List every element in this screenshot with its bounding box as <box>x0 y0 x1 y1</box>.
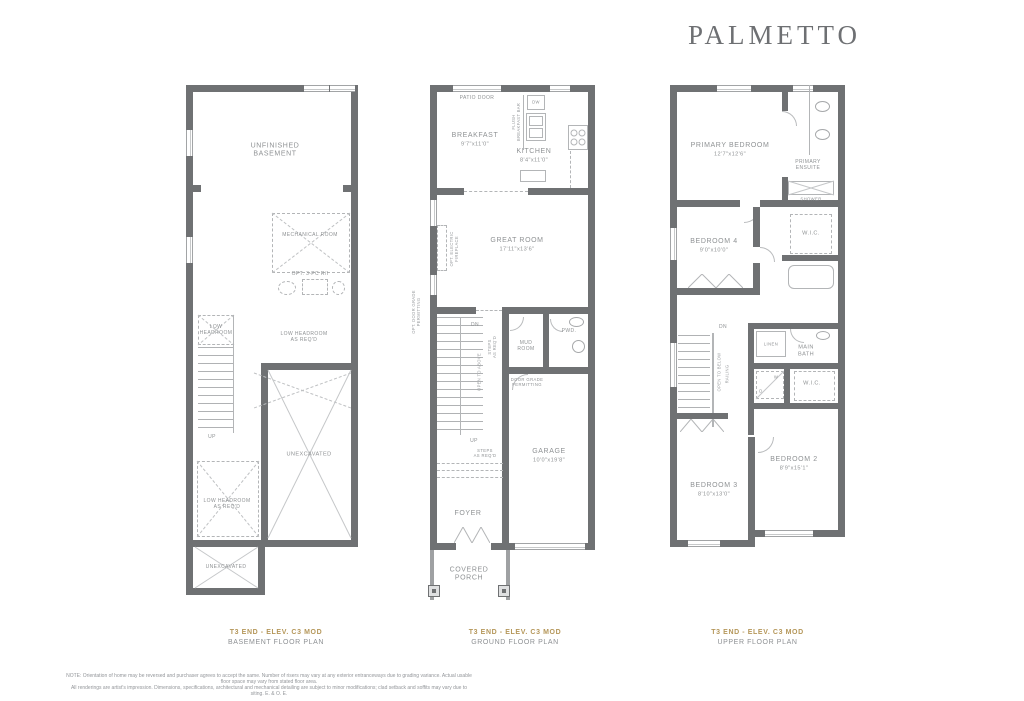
wall <box>261 363 358 370</box>
door-arc <box>790 329 804 343</box>
room-label-primary-bedroom: PRIMARY BEDROOM <box>691 142 770 150</box>
wall <box>186 540 358 547</box>
wall <box>748 323 754 435</box>
window <box>550 85 570 92</box>
wall <box>502 307 595 314</box>
kitchen-island <box>520 170 546 182</box>
room-dims-bedroom2: 8'9"x15'1" <box>780 466 808 473</box>
room-label-covered-porch: COVERED PORCH <box>450 567 489 584</box>
label-door-grade: DOOR GRADE PERMITTING <box>511 377 544 387</box>
wall <box>186 85 193 595</box>
wall <box>838 85 845 537</box>
label-flush-breakfast-bar: FLUSH BREAKFAST BAR <box>511 103 522 141</box>
basement-caption: T3 END - ELEV. C3 MOD BASEMENT FLOOR PLA… <box>186 629 366 646</box>
door-arc <box>782 111 797 126</box>
ground-caption: T3 END - ELEV. C3 MOD GROUND FLOOR PLAN <box>430 629 600 646</box>
room-label-foyer: FOYER <box>454 510 481 518</box>
window <box>688 540 720 547</box>
label-railing: RAILING <box>724 365 729 384</box>
window <box>793 85 813 92</box>
opt-bath-toilet <box>332 281 345 295</box>
room-label-bedroom2: BEDROOM 2 <box>770 456 817 464</box>
door-arc <box>510 317 524 331</box>
label-low-headroom-right: LOW HEADROOM AS REQ'D <box>280 331 327 343</box>
label-dishwasher: DW <box>532 99 540 104</box>
label-up: UP <box>470 438 478 444</box>
room-label-great-room: GREAT ROOM <box>490 237 543 245</box>
label-open-to-below: OPEN TO BELOW <box>716 353 721 392</box>
room-label-breakfast: BREAKFAST <box>452 132 499 140</box>
wall <box>430 85 437 550</box>
upper-caption-plan: UPPER FLOOR PLAN <box>670 639 845 646</box>
porch-pillar <box>428 585 440 597</box>
room-label-bedroom4: BEDROOM 4 <box>690 238 737 246</box>
room-dims-bedroom3: 8'10"x13'0" <box>698 492 730 499</box>
closet-doors <box>680 419 724 432</box>
label-opt-door-grade: OPT. DOOR GRADE PERMITTING <box>411 290 422 334</box>
wall <box>430 307 476 314</box>
room-label-mud-room: MUD ROOM <box>517 340 534 352</box>
room-label-wic-lower: W.I.C. <box>803 381 821 388</box>
label-steps-as-reqd-v: STEPS AS REQ'D <box>487 336 498 358</box>
sink <box>815 101 830 112</box>
cooktop-burners <box>568 125 588 150</box>
wall <box>754 363 845 369</box>
wall <box>543 314 549 374</box>
room-dims-garage: 10'0"x19'8" <box>533 458 565 465</box>
ground-floor-plan: PATIO DOOR BREAKFAST 9'7"x11'0" KITCHEN … <box>430 85 600 605</box>
garage-door <box>515 543 585 550</box>
window <box>717 85 734 92</box>
room-label-kitchen: KITCHEN <box>517 148 552 156</box>
room-label-pwd: PWD. <box>562 328 577 334</box>
label-unexcavated: UNEXCAVATED <box>286 452 331 459</box>
room-label-mechanical-room: MECHANICAL ROOM <box>282 232 338 238</box>
window <box>186 237 193 263</box>
wall <box>588 85 595 546</box>
window <box>430 200 437 226</box>
label-up: UP <box>208 434 216 440</box>
bathtub <box>788 265 834 289</box>
room-dims-bedroom4: 9'0"x10'0" <box>700 248 728 255</box>
window <box>670 343 677 387</box>
shower-cross <box>788 181 834 195</box>
room-label-primary-ensuite: PRIMARY ENSUITE <box>795 159 821 171</box>
label-unexcavated-small: UNEXCAVATED <box>206 564 247 570</box>
room-dims-great-room: 17'11"x13'6" <box>499 247 534 254</box>
wall <box>748 437 755 547</box>
window <box>304 85 329 92</box>
opt-bath-vanity <box>302 279 328 295</box>
upper-caption-model: T3 END - ELEV. C3 MOD <box>670 629 845 636</box>
room-dims-primary-bedroom: 12'7"x12'6" <box>714 152 746 159</box>
room-label-garage: GARAGE <box>532 448 566 456</box>
opt-bath-fixture <box>278 281 296 295</box>
stairs <box>198 347 234 431</box>
room-dims-breakfast: 9'7"x11'0" <box>461 142 489 149</box>
label-washer: W <box>774 374 778 379</box>
basement-floor-plan: UNFINISHED BASEMENT MECHANICAL ROOM OPT.… <box>186 85 366 600</box>
steps-dashed <box>437 463 503 464</box>
room-dims-kitchen: 8'4"x11'0" <box>520 158 548 165</box>
wall <box>753 207 760 247</box>
wall <box>258 540 265 595</box>
fireplace-outline <box>437 225 447 271</box>
wall <box>782 85 788 111</box>
laundry-diagonal <box>756 371 784 399</box>
wall <box>754 403 845 409</box>
wall <box>502 314 509 546</box>
label-dn: DN <box>719 324 727 330</box>
wall <box>670 85 677 547</box>
oven-detail <box>529 128 543 138</box>
toilet <box>569 317 584 327</box>
wall <box>186 588 265 595</box>
sink <box>572 340 585 353</box>
label-opt-3pc: OPT. 3-PC R/I <box>292 271 329 277</box>
sink <box>815 129 830 140</box>
window <box>186 130 193 156</box>
door-arc <box>758 437 774 453</box>
window <box>330 85 355 92</box>
door-arc <box>760 247 775 262</box>
wall <box>670 288 760 295</box>
wall <box>351 85 358 547</box>
label-shower: SHOWER <box>800 196 821 201</box>
stair-stringer <box>233 315 234 433</box>
label-patio-door: PATIO DOOR <box>460 95 495 101</box>
opening-dashed <box>476 310 502 311</box>
breakfast-bar-counter <box>523 95 524 150</box>
vanity-counter <box>809 85 810 155</box>
steps-dashed <box>437 477 503 478</box>
front-double-door <box>454 527 490 543</box>
wall <box>784 369 790 405</box>
porch-pillar <box>498 585 510 597</box>
window <box>670 228 677 260</box>
wall <box>430 543 456 550</box>
opening-dashed <box>464 191 528 192</box>
patio-door <box>453 85 501 92</box>
wall <box>670 200 740 207</box>
room-label-main-bath: MAIN BATH <box>798 344 814 357</box>
ground-caption-plan: GROUND FLOOR PLAN <box>430 639 600 646</box>
oven-detail <box>529 116 543 126</box>
stairs <box>678 335 710 417</box>
wall <box>670 85 845 92</box>
label-dn: DN <box>471 322 479 328</box>
window <box>430 275 437 295</box>
wall <box>509 367 595 374</box>
stair-divider <box>460 317 461 435</box>
wall <box>782 255 845 261</box>
label-low-headroom-bottom: LOW HEADROOM AS REQ'D <box>203 498 250 510</box>
upper-caption: T3 END - ELEV. C3 MOD UPPER FLOOR PLAN <box>670 629 845 646</box>
wall-pilaster <box>343 185 351 192</box>
disclaimer-note: NOTE: Orientation of home may be reverse… <box>64 673 474 697</box>
window <box>765 530 813 537</box>
upper-floor-plan: PRIMARY BEDROOM 12'7"x12'6" PRIMARY ENSU… <box>670 85 845 555</box>
label-dryer: D <box>759 388 762 393</box>
ground-caption-model: T3 END - ELEV. C3 MOD <box>430 629 600 636</box>
brand-logo: PALMETTO <box>688 20 852 51</box>
room-label-unfinished-basement: UNFINISHED BASEMENT <box>251 143 300 160</box>
basement-caption-model: T3 END - ELEV. C3 MOD <box>186 629 366 636</box>
wall <box>528 188 595 195</box>
room-label-linen: LINEN <box>764 341 778 346</box>
closet-doors <box>688 274 743 288</box>
basement-caption-plan: BASEMENT FLOOR PLAN <box>186 639 366 646</box>
window <box>734 85 751 92</box>
room-label-wic-top: W.I.C. <box>802 231 820 238</box>
label-opt-fireplace: OPT. ELECTRIC FIREPLACE <box>449 231 460 266</box>
wall <box>491 543 505 550</box>
label-open-to-above: OPEN TO ABOVE <box>476 353 481 391</box>
wall <box>430 188 464 195</box>
room-label-bedroom3: BEDROOM 3 <box>690 482 737 490</box>
mechanical-room-cross <box>272 213 350 273</box>
toilet <box>816 331 830 340</box>
steps-dashed <box>437 470 503 471</box>
wall-pilaster <box>193 185 201 192</box>
label-low-headroom: LOW HEADROOM <box>200 324 233 336</box>
counter-edge <box>570 151 571 188</box>
label-steps-as-reqd: STEPS AS REQ'D <box>474 448 497 458</box>
